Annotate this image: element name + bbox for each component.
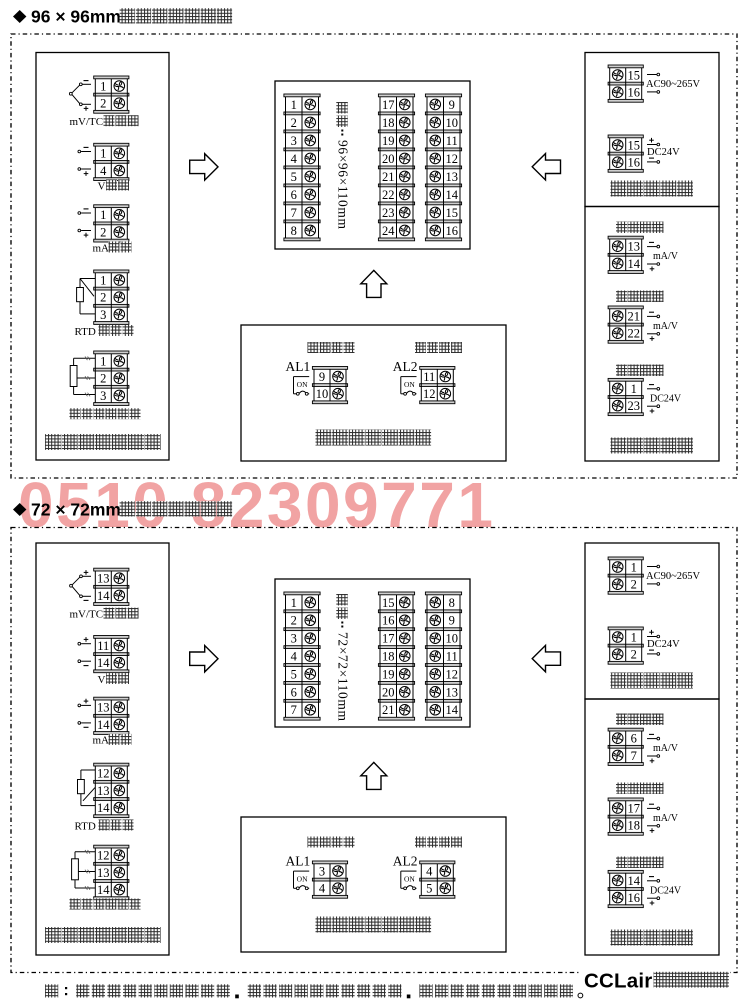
svg-text:18: 18 [382, 116, 395, 130]
svg-text:14: 14 [97, 718, 110, 732]
svg-text:11: 11 [423, 370, 435, 384]
svg-text:14: 14 [446, 188, 459, 202]
svg-text:3: 3 [100, 308, 106, 322]
svg-text:17: 17 [382, 98, 395, 112]
svg-text:1: 1 [100, 147, 106, 161]
svg-text:9: 9 [319, 370, 325, 384]
svg-text:2: 2 [100, 225, 106, 239]
svg-text:7: 7 [291, 206, 297, 220]
svg-text:16: 16 [382, 614, 395, 628]
svg-text:CCLair: CCLair [584, 969, 652, 992]
svg-text:14: 14 [446, 703, 459, 717]
svg-text:12: 12 [97, 767, 110, 781]
svg-text:5: 5 [291, 170, 297, 184]
svg-text:14: 14 [97, 801, 110, 815]
svg-text:13: 13 [446, 170, 459, 184]
svg-text:2: 2 [291, 614, 297, 628]
svg-text:12: 12 [97, 849, 110, 863]
svg-text:15: 15 [382, 596, 395, 610]
svg-text:21: 21 [627, 309, 640, 323]
svg-text:DC24V: DC24V [650, 885, 682, 896]
svg-text:21: 21 [382, 170, 395, 184]
svg-text:AC90~265V: AC90~265V [646, 79, 701, 90]
svg-text:2: 2 [100, 291, 106, 305]
svg-text:mA/V: mA/V [653, 813, 679, 824]
svg-text:19: 19 [382, 134, 395, 148]
svg-text:RTD: RTD [75, 820, 96, 832]
svg-text:4: 4 [100, 164, 107, 178]
svg-text:ON: ON [404, 380, 415, 389]
svg-text:12: 12 [446, 152, 459, 166]
svg-text:1: 1 [100, 79, 106, 93]
svg-text:15: 15 [446, 206, 459, 220]
svg-text:AC90~265V: AC90~265V [646, 571, 701, 582]
svg-text:ON: ON [297, 380, 308, 389]
svg-text:2: 2 [631, 648, 637, 662]
svg-text:AL1: AL1 [286, 854, 311, 869]
svg-text:1: 1 [100, 354, 106, 368]
svg-text:72×72×110mm: 72×72×110mm [335, 632, 350, 722]
svg-text:3: 3 [291, 632, 297, 646]
svg-text:8: 8 [449, 596, 455, 610]
svg-text:14: 14 [97, 883, 110, 897]
svg-text:13: 13 [97, 784, 110, 798]
svg-text:14: 14 [627, 257, 640, 271]
svg-text:17: 17 [382, 632, 395, 646]
svg-text:7: 7 [631, 749, 637, 763]
svg-text:1: 1 [631, 630, 637, 644]
svg-text:15: 15 [627, 138, 640, 152]
svg-text:17: 17 [627, 801, 640, 815]
svg-text:14: 14 [97, 589, 110, 603]
svg-text:9: 9 [449, 98, 455, 112]
svg-text:1: 1 [631, 382, 637, 396]
svg-text:1: 1 [100, 208, 106, 222]
svg-text:6: 6 [291, 188, 297, 202]
svg-text:mA/V: mA/V [653, 321, 679, 332]
svg-text:AL1: AL1 [286, 359, 311, 374]
svg-text:10: 10 [316, 387, 329, 401]
svg-text:3: 3 [100, 389, 106, 403]
svg-text:11: 11 [446, 134, 458, 148]
svg-text:20: 20 [382, 685, 395, 699]
svg-text:23: 23 [382, 206, 395, 220]
svg-text:mA: mA [93, 735, 110, 747]
svg-text:14: 14 [627, 874, 640, 888]
svg-text:V: V [98, 180, 106, 192]
svg-text:96 × 96mm: 96 × 96mm [31, 7, 121, 27]
svg-text:13: 13 [446, 685, 459, 699]
svg-text:2: 2 [291, 116, 297, 130]
svg-text:mV/TC: mV/TC [70, 608, 104, 620]
svg-text:16: 16 [627, 891, 640, 905]
svg-text:mA/V: mA/V [653, 251, 679, 262]
svg-text:18: 18 [382, 649, 395, 663]
svg-text:5: 5 [291, 667, 297, 681]
svg-text:AL2: AL2 [393, 854, 418, 869]
svg-text:mA/V: mA/V [653, 743, 679, 754]
svg-text:5: 5 [426, 882, 432, 896]
svg-text:DC24V: DC24V [647, 147, 680, 158]
svg-text:14: 14 [97, 656, 110, 670]
svg-text:18: 18 [627, 819, 640, 833]
svg-text:20: 20 [382, 152, 395, 166]
svg-text:3: 3 [291, 134, 297, 148]
svg-text:10: 10 [446, 632, 459, 646]
svg-text:1: 1 [291, 98, 297, 112]
svg-text:4: 4 [426, 864, 433, 878]
svg-text:13: 13 [97, 701, 110, 715]
svg-text:16: 16 [627, 156, 640, 170]
svg-text:11: 11 [97, 639, 109, 653]
svg-text:ON: ON [297, 875, 308, 884]
svg-text:DC24V: DC24V [650, 393, 682, 404]
svg-text:2: 2 [100, 372, 106, 386]
svg-text:22: 22 [627, 327, 640, 341]
svg-text:13: 13 [97, 866, 110, 880]
svg-text:13: 13 [627, 240, 640, 254]
svg-text:10: 10 [446, 116, 459, 130]
svg-text:V: V [98, 674, 106, 686]
svg-text:12: 12 [446, 667, 459, 681]
svg-text:6: 6 [631, 732, 637, 746]
svg-text:72 × 72mm: 72 × 72mm [31, 500, 121, 520]
svg-text:7: 7 [291, 703, 297, 717]
svg-text:16: 16 [627, 86, 640, 100]
svg-text:11: 11 [446, 649, 458, 663]
svg-text:13: 13 [97, 572, 110, 586]
svg-text:mV/TC: mV/TC [70, 116, 104, 128]
svg-text:1: 1 [100, 273, 106, 287]
svg-text:19: 19 [382, 667, 395, 681]
svg-text:16: 16 [446, 224, 459, 238]
svg-text:22: 22 [382, 188, 395, 202]
svg-text:23: 23 [627, 399, 640, 413]
svg-text:RTD: RTD [75, 326, 96, 338]
svg-text:2: 2 [631, 578, 637, 592]
svg-text:mA: mA [93, 242, 110, 254]
svg-text:1: 1 [631, 560, 637, 574]
svg-text:8: 8 [291, 224, 297, 238]
svg-text:4: 4 [319, 882, 326, 896]
svg-text:2: 2 [100, 97, 106, 111]
svg-text:1: 1 [291, 596, 297, 610]
svg-text:96×96×110mm: 96×96×110mm [335, 140, 350, 230]
svg-text:ON: ON [404, 875, 415, 884]
svg-text:6: 6 [291, 685, 297, 699]
svg-text:12: 12 [423, 387, 436, 401]
svg-text:DC24V: DC24V [647, 639, 680, 650]
svg-text:4: 4 [291, 649, 298, 663]
svg-text:24: 24 [382, 224, 395, 238]
svg-text:4: 4 [291, 152, 298, 166]
svg-text:9: 9 [449, 614, 455, 628]
svg-text:3: 3 [319, 864, 325, 878]
svg-text:21: 21 [382, 703, 395, 717]
svg-text:15: 15 [627, 68, 640, 82]
svg-text:AL2: AL2 [393, 359, 418, 374]
